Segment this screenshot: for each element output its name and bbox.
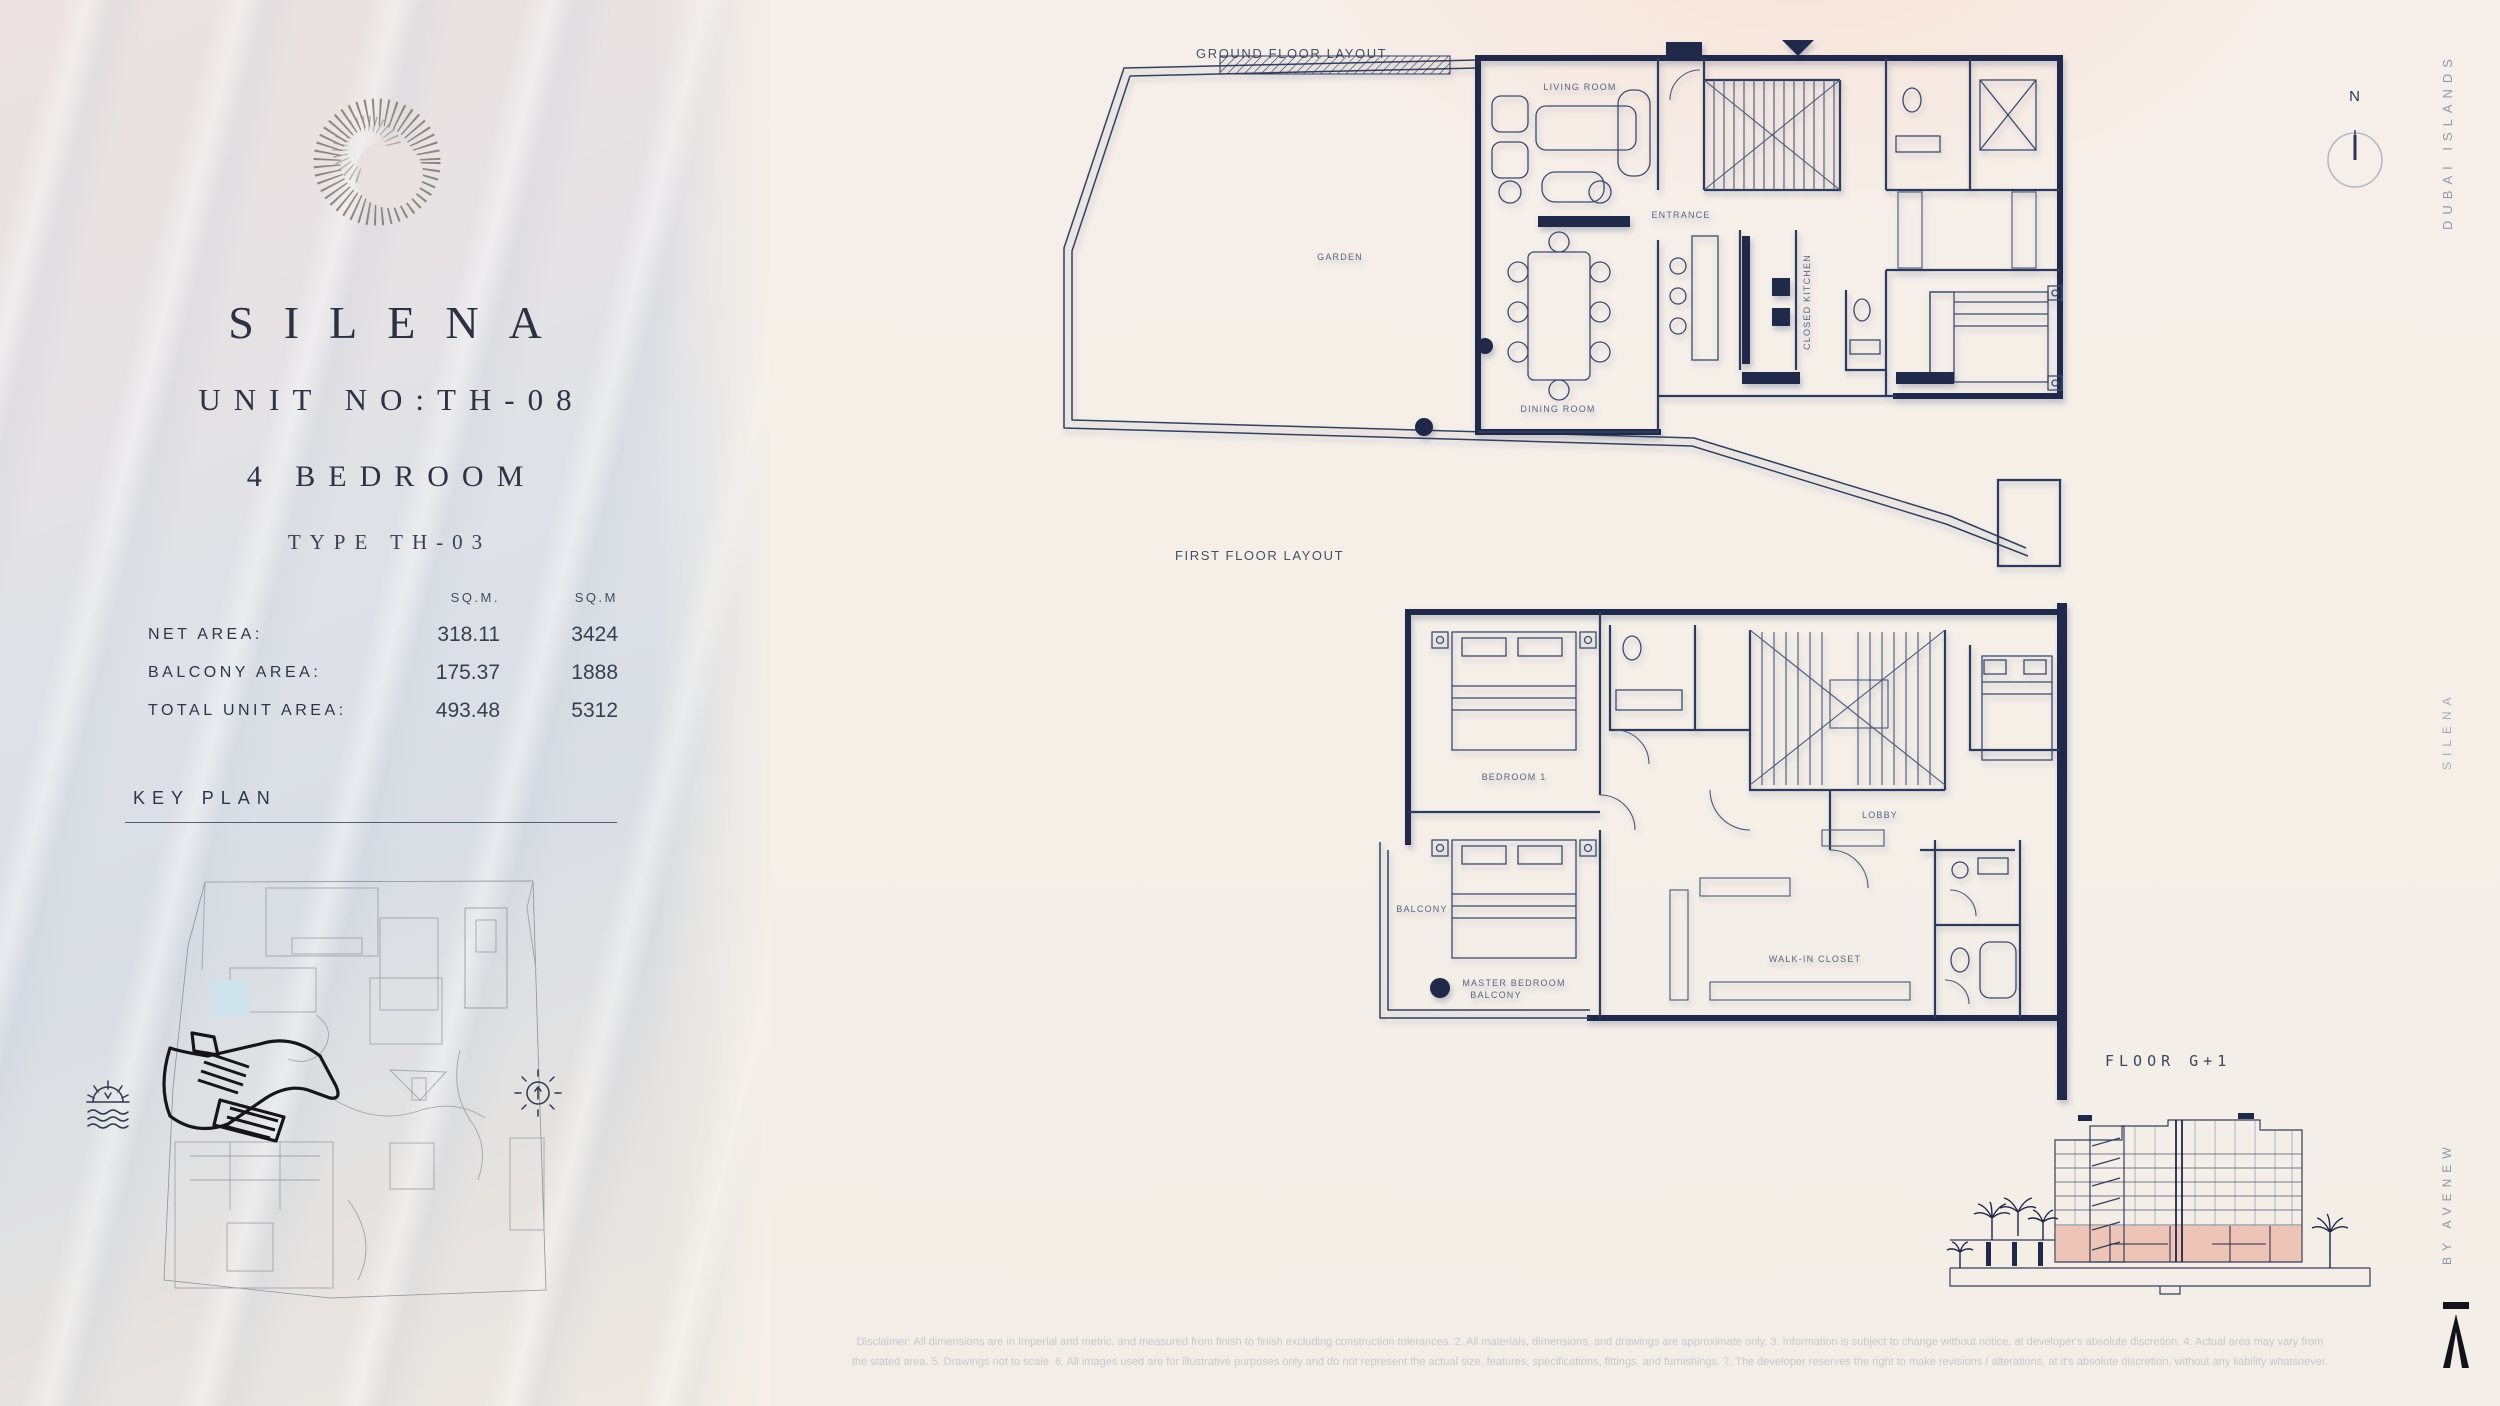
col-header-sqft: SQ.M [500, 590, 618, 605]
room-label-living: LIVING ROOM [1543, 82, 1616, 92]
disclaimer-text: Disclaimer: All dimensions are in Imperi… [800, 1332, 2380, 1373]
balcony-area-sqft: 1888 [500, 661, 618, 685]
row-label-net-area: NET AREA: [148, 626, 388, 644]
row-label-total-area: TOTAL UNIT AREA: [148, 702, 388, 720]
first-floor-label: FIRST FLOOR LAYOUT [1175, 548, 1344, 563]
unit-type: TYPE TH-03 [0, 530, 770, 555]
left-info-panel: SILENA UNIT NO:TH-08 4 BEDROOM TYPE TH-0… [0, 0, 770, 1406]
net-area-sqft: 3424 [500, 623, 618, 647]
room-label-dining: DINING ROOM [1520, 404, 1595, 414]
north-compass: N [2310, 88, 2400, 208]
col-header-sqm: SQ.M. [388, 590, 500, 605]
total-area-sqft: 5312 [500, 699, 618, 723]
key-plan-site-map [80, 850, 760, 1340]
room-label-lobby: LOBBY [1862, 810, 1898, 820]
room-label-kitchen: CLOSED KITCHEN [1802, 254, 1812, 350]
elevation-floor-tag: FLOOR G+1 [2105, 1052, 2231, 1070]
rail-by-avenew: BY AVENEW [2440, 1120, 2454, 1265]
room-label-master: MASTER BEDROOM [1462, 978, 1565, 988]
room-label-balcony-2: BALCONY [1470, 990, 1521, 1000]
bedroom-count: 4 BEDROOM [0, 460, 770, 494]
sunset-sea-icon [87, 1081, 129, 1128]
room-label-entrance: ENTRANCE [1651, 210, 1710, 220]
total-area-sqm: 493.48 [388, 699, 500, 723]
key-plan-underline [125, 822, 617, 823]
ground-floor-plan: LIVING ROOM DINING ROOM GARDEN CLOSED KI… [1040, 40, 2070, 585]
balcony-area-sqm: 175.37 [388, 661, 500, 685]
room-label-bedroom1: BEDROOM 1 [1482, 772, 1547, 782]
disclaimer-line-2: the stated area. 5. Drawings not to scal… [800, 1352, 2380, 1372]
compass-n-label: N [2310, 88, 2400, 105]
rail-dubai-islands: DUBAI ISLANDS [2440, 45, 2455, 230]
row-label-balcony-area: BALCONY AREA: [148, 664, 388, 682]
avenew-logo-icon [2440, 1302, 2472, 1368]
rail-silena: SILENA [2440, 675, 2454, 770]
net-area-sqm: 318.11 [388, 623, 500, 647]
area-table: SQ.M. SQ.M NET AREA: 318.11 3424 BALCONY… [148, 578, 618, 730]
room-label-garden: GARDEN [1317, 252, 1363, 262]
room-label-closet: WALK-IN CLOSET [1769, 954, 1861, 964]
project-title: SILENA [0, 296, 770, 349]
disclaimer-line-1: Disclaimer: All dimensions are in Imperi… [800, 1332, 2380, 1352]
room-label-balcony-1: BALCONY [1396, 904, 1447, 914]
first-floor-plan: BEDROOM 1 MASTER BEDROOM WALK-IN CLOSET … [1360, 590, 2080, 1110]
building-elevation [1930, 1090, 2410, 1320]
silena-spiral-logo-icon [305, 88, 457, 244]
sun-direction-icon [515, 1070, 561, 1116]
key-plan-title: KEY PLAN [133, 788, 277, 809]
unit-number: UNIT NO:TH-08 [0, 382, 770, 418]
